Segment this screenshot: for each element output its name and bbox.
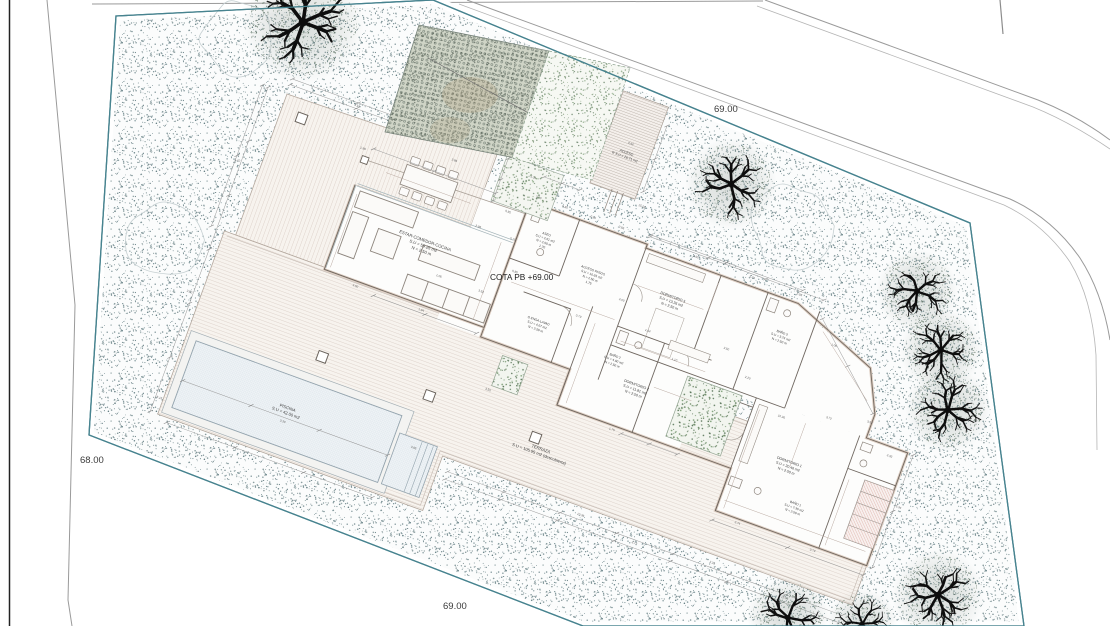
svg-text:69.00: 69.00 <box>443 601 467 612</box>
svg-text:COTA PB +69.00: COTA PB +69.00 <box>490 272 554 282</box>
svg-text:68.00: 68.00 <box>80 455 104 466</box>
svg-text:69.00: 69.00 <box>714 104 738 115</box>
